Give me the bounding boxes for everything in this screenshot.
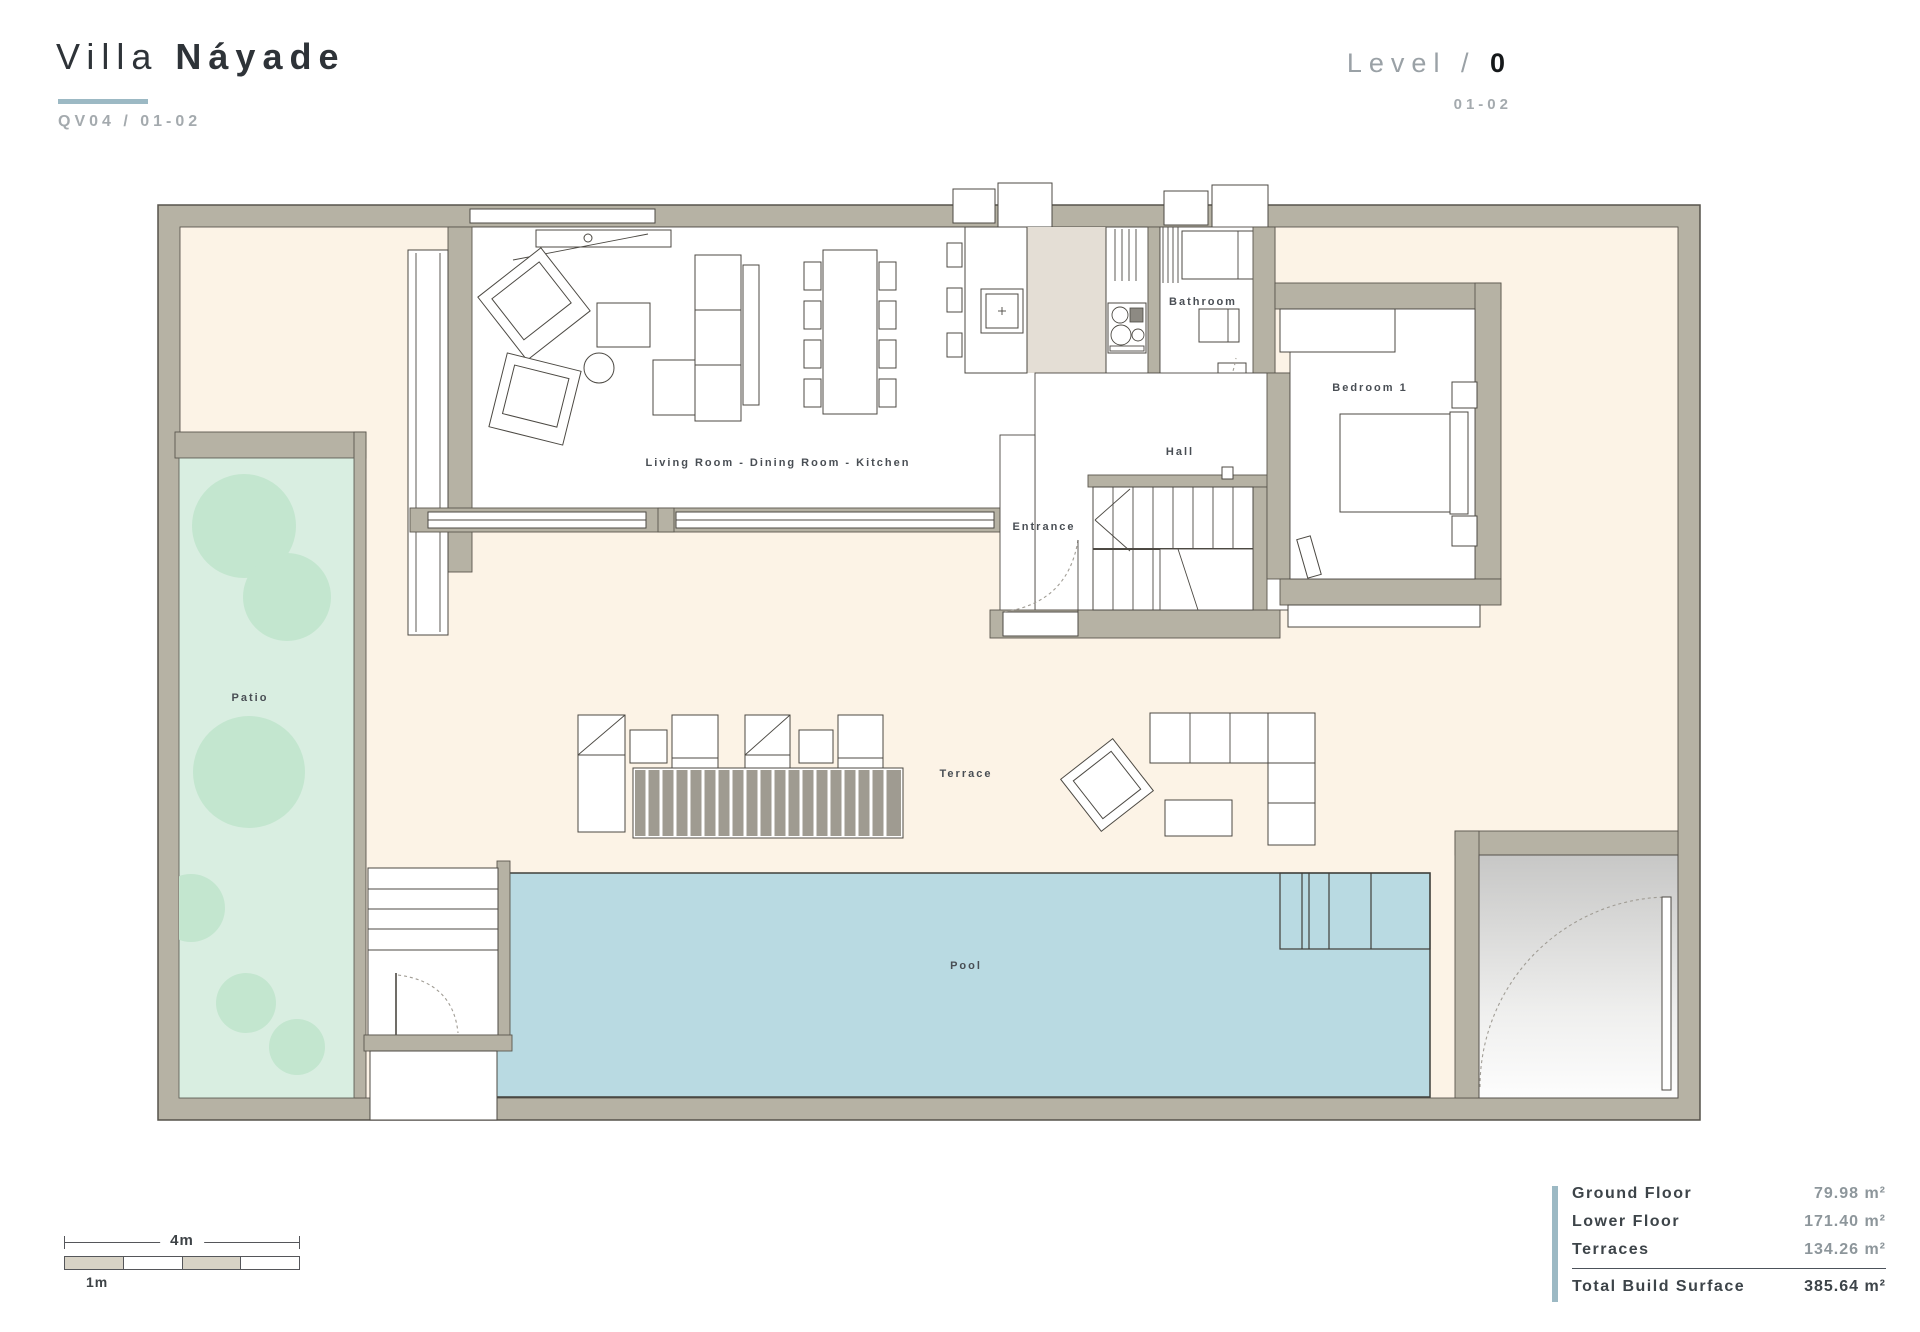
bathroom-label: Bathroom [1169,296,1237,308]
areas-row-lower-floor: Lower Floor 171.40 m² [1552,1208,1886,1236]
hall-label: Hall [1166,446,1194,458]
kitchen-island [947,227,1027,373]
gate-wall-left [1455,831,1479,1098]
bedroom-1-area: Bedroom 1 [1267,283,1501,627]
side-table-round [584,353,614,383]
page-title: Villa Náyade [56,36,345,78]
area-value: 171.40 m² [1804,1208,1886,1236]
bed [1340,414,1452,512]
kitchen-floor [1027,227,1106,373]
pool-area: Pool [470,873,1430,1097]
area-value: 134.26 m² [1804,1236,1886,1264]
bedroom-wall-south [1280,579,1501,605]
gate-wall-top [1455,831,1678,855]
pool-label: Pool [950,960,982,972]
areas-row-terraces: Terraces 134.26 m² [1552,1236,1886,1264]
exterior-stairs [364,861,512,1120]
gate-leaf [1662,897,1671,1090]
patio-label: Patio [232,692,269,704]
patio-wall-right [354,432,366,1098]
north-window [470,209,655,223]
level-value: 0 [1490,48,1512,78]
washbasin [1199,309,1239,342]
driveway [1479,855,1678,1098]
floor-plan-drawing: Patio [158,205,1700,1120]
bed-headboard [1450,412,1468,514]
scale-4m-label: 4m [160,1232,204,1249]
title-bold: Náyade [175,36,345,77]
bedroom-label: Bedroom 1 [1332,382,1407,394]
floor-plan: Patio [158,205,1700,1120]
area-label: Lower Floor [1572,1208,1680,1236]
staircase [1088,467,1278,610]
areas-divider [1572,1268,1886,1269]
areas-row-ground-floor: Ground Floor 79.98 m² [1552,1180,1886,1208]
nightstand-1 [1452,382,1477,408]
bedroom-wall-east [1475,283,1501,579]
bathtub [1182,231,1254,279]
area-label: Total Build Surface [1572,1273,1745,1301]
gate-area [1455,831,1678,1098]
area-value: 385.64 m² [1804,1273,1886,1301]
plan-reference: QV04 / 01-02 [58,113,201,131]
entrance-step [1003,612,1078,636]
scale-bar: 4m 1m [64,1236,300,1290]
west-window [408,250,448,635]
stair-door-stop [1222,467,1233,479]
level-reference: 01-02 [1454,96,1512,113]
title-underline [58,99,148,104]
area-label: Ground Floor [1572,1180,1692,1208]
level-indicator: Level / 0 [1347,48,1512,79]
bedroom-terrace-step [1288,605,1480,627]
terrace-label: Terrace [940,768,993,780]
areas-table: Ground Floor 79.98 m² Lower Floor 171.40… [1552,1180,1886,1301]
scale-1m-label: 1m [86,1274,300,1290]
coffee-table [597,303,650,347]
scale-rule: 4m [64,1236,300,1250]
level-label: Level / [1347,48,1476,78]
living-room-label: Living Room - Dining Room - Kitchen [646,457,911,469]
patio-wall-top [175,432,366,458]
areas-accent-bar [1552,1186,1558,1302]
louvered-deck [633,768,903,838]
pool-water [470,873,1430,1097]
scale-segments [64,1256,300,1270]
bedroom-closet [1280,309,1395,352]
title-light: Villa [56,36,158,77]
nightstand-2 [1452,516,1477,546]
porch [370,1051,497,1120]
patio-area: Patio [157,432,366,1098]
entrance-label: Entrance [1012,521,1075,533]
bedroom-wall-north [1275,283,1501,309]
area-value: 79.98 m² [1814,1180,1886,1208]
tv-console [536,230,671,247]
outdoor-table [1165,800,1232,836]
area-label: Terraces [1572,1236,1650,1264]
areas-row-total: Total Build Surface 385.64 m² [1552,1273,1886,1301]
door-post [658,508,674,532]
